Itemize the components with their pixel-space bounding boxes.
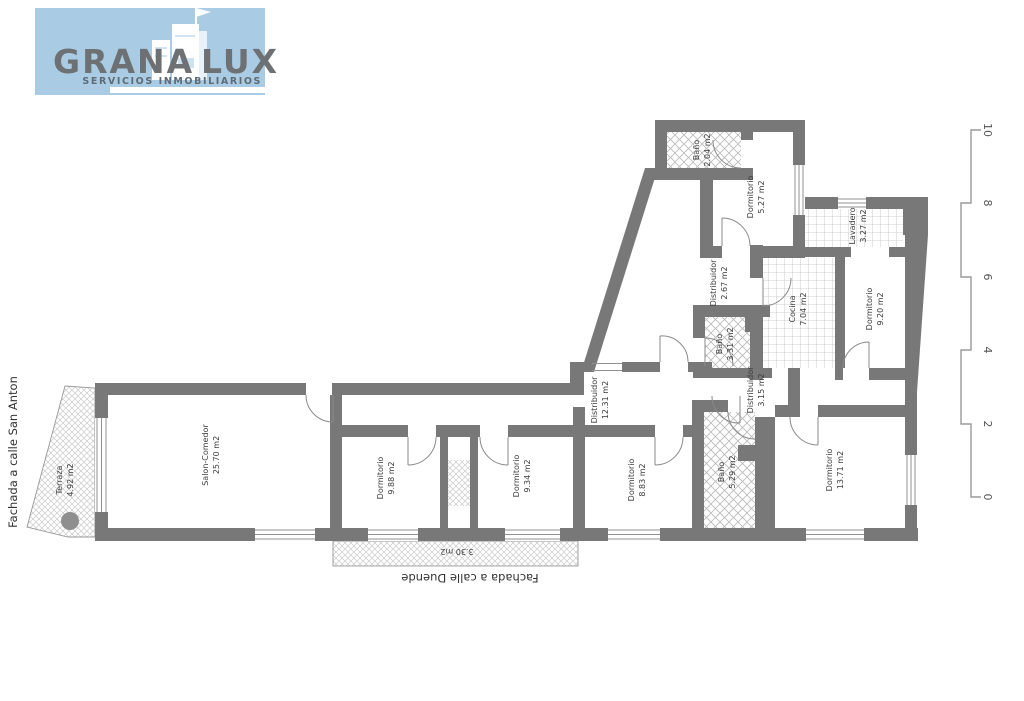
door-distrib — [660, 336, 688, 362]
scale-label-10: 10 — [981, 123, 994, 137]
room-label-distribuidor-3: Distribuidor2.67 m2 — [709, 259, 729, 307]
door-dorm3 — [655, 437, 683, 465]
shaft-area — [448, 460, 470, 506]
room-label-distribuidor-1: Distribuidor12.31 m2 — [590, 376, 610, 424]
window-laundry-top — [838, 199, 866, 207]
terraza-planter — [61, 512, 79, 530]
floor-plan-page: GRANA LUX SERVICIOS INMOBILIARIOS — [0, 0, 1024, 701]
room-label-dormitorio-1: Dormitorio9.88 m2 — [376, 457, 396, 500]
door-dorm1 — [408, 437, 436, 465]
window-dorm1-bottom — [368, 528, 418, 541]
scale-label-6: 6 — [981, 274, 994, 281]
door-dorm6 — [843, 342, 869, 368]
scale-label-0: 0 — [981, 494, 994, 501]
floor-plan-canvas: GRANA LUX SERVICIOS INMOBILIARIOS — [0, 0, 1024, 701]
room-label-dormitorio-4: Dormitorio13.71 m2 — [825, 449, 845, 492]
floor-plan: Terraza4.92 m2 Salon-Comedor25.70 m2 Dor… — [6, 120, 994, 585]
scale-bar-line — [961, 130, 981, 497]
room-label-dormitorio-5: Dormitorio9.20 m2 — [865, 288, 885, 331]
window-dorm5-right — [793, 165, 805, 215]
room-label-salon-comedor: Salon-Comedor25.70 m2 — [201, 424, 221, 486]
door-dorm5 — [722, 218, 750, 246]
scale-label-2: 2 — [981, 421, 994, 428]
door-salon — [306, 395, 333, 422]
logo-underline-bar — [110, 87, 265, 93]
window-salon-left — [95, 418, 108, 512]
room-label-dormitorio-3: Dormitorio8.83 m2 — [627, 459, 647, 502]
window-dorm4-bottom — [806, 528, 864, 541]
door-dorm2 — [480, 437, 508, 465]
brand-tagline: SERVICIOS INMOBILIARIOS — [82, 76, 262, 87]
room-label-dormitorio-6: Dormitorio5.27 m2 — [746, 176, 766, 219]
facade-label-bottom: Fachada a calle Duende — [401, 571, 538, 585]
window-right-wall — [905, 455, 917, 505]
scale-label-8: 8 — [981, 200, 994, 207]
door-dorm4 — [790, 417, 818, 445]
scale-label-4: 4 — [981, 347, 994, 354]
scale-bar: 0 2 4 6 8 10 — [961, 123, 994, 501]
room-label-balcony: 3.30 m2 — [440, 547, 473, 556]
window-dorm2-bottom — [505, 528, 560, 541]
window-salon-bottom — [255, 528, 315, 541]
logo-brand-text: GRANA LUX SERVICIOS INMOBILIARIOS — [53, 42, 279, 87]
terraza-area — [27, 386, 95, 537]
room-label-dormitorio-2: Dormitorio9.34 m2 — [512, 455, 532, 498]
logo: GRANA LUX SERVICIOS INMOBILIARIOS — [35, 8, 279, 95]
entry-opening — [592, 364, 622, 371]
window-dorm3-bottom — [608, 528, 660, 541]
facade-label-left: Fachada a calle San Anton — [6, 376, 20, 528]
